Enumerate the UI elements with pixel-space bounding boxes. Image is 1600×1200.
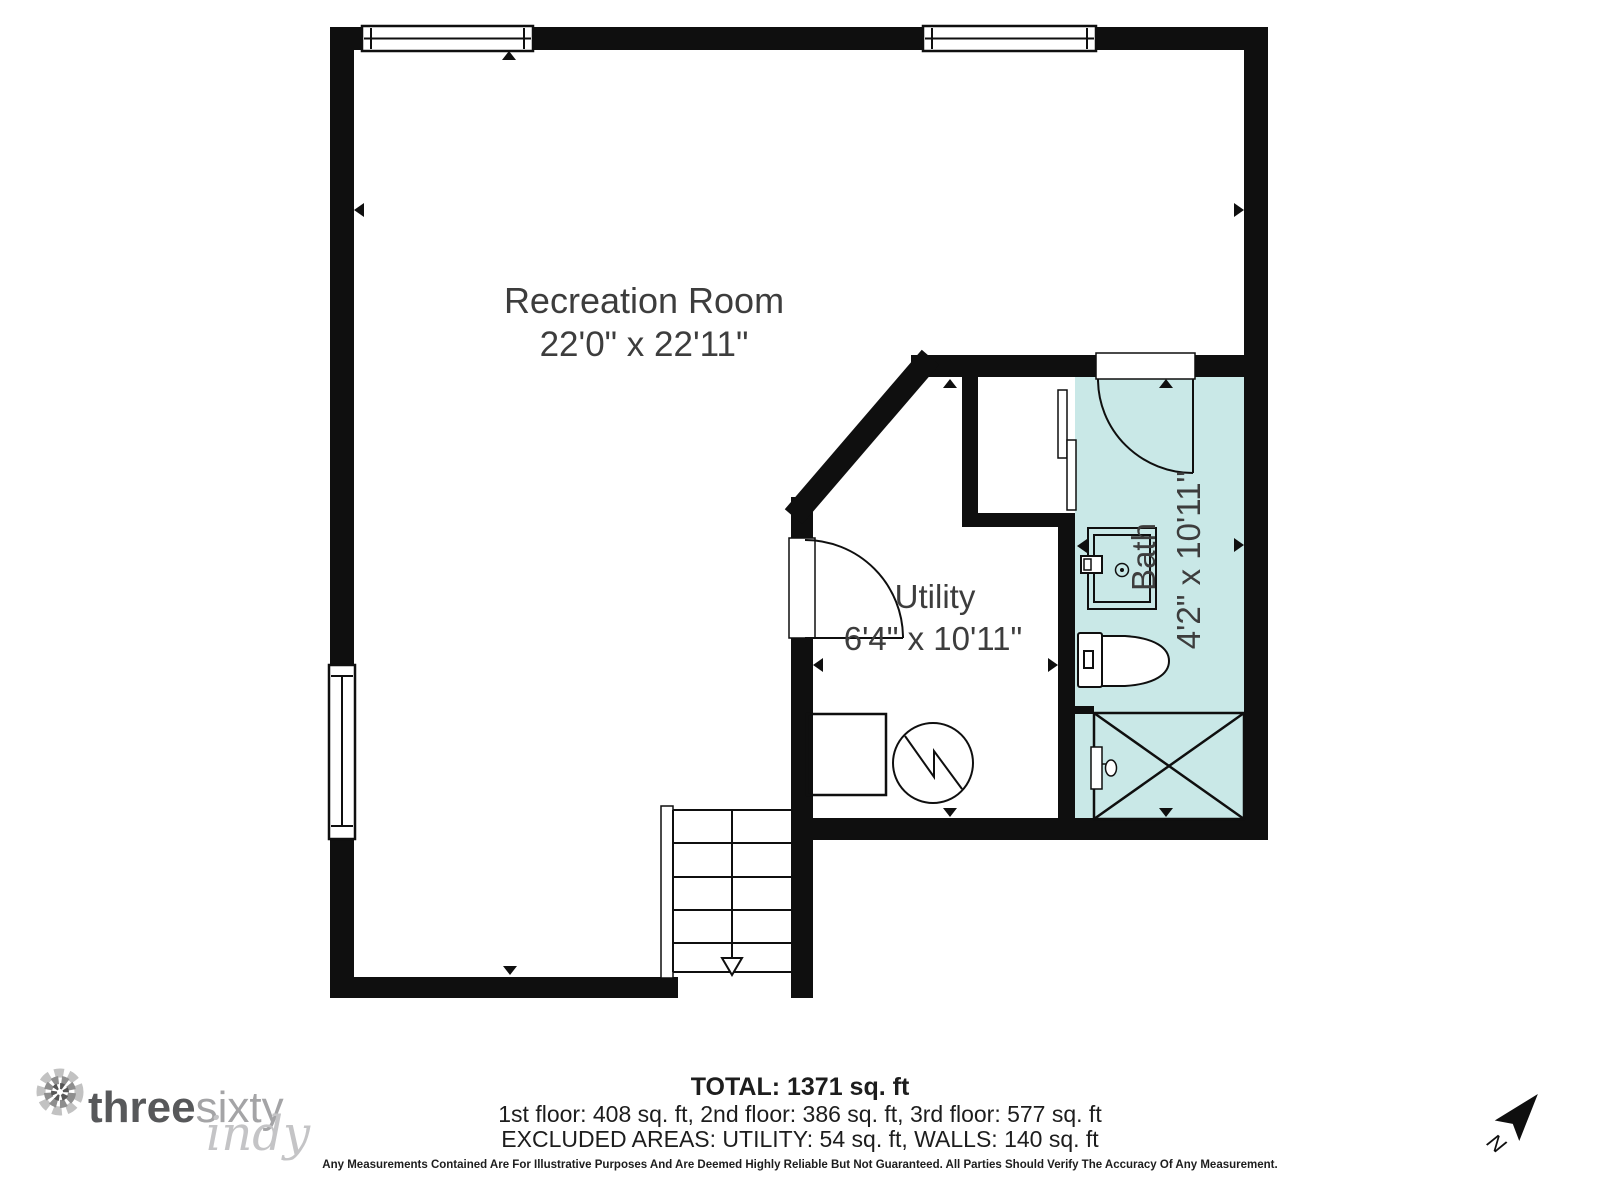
north-arrow: N [1476, 1084, 1550, 1164]
window-top-left [362, 26, 533, 51]
windows [329, 26, 1096, 839]
floor-plan-page: Recreation Room 22'0" x 22'11" Utility 6… [0, 0, 1600, 1200]
bath-dims: 4'2" x 10'11" [1170, 471, 1207, 650]
wall-shower-stub [1075, 706, 1094, 714]
excluded-areas-text: EXCLUDED AREAS: UTILITY: 54 sq. ft, WALL… [501, 1126, 1099, 1152]
utility-dims: 6'4" x 10'11" [844, 620, 1023, 657]
logo-word-three: three [88, 1083, 196, 1132]
wall-bottom-utility-bath [791, 818, 1268, 840]
wall-utility-bath-north [911, 355, 1098, 377]
wall-closet-west [962, 377, 978, 527]
logo-script: indy [206, 1106, 311, 1162]
utility-door-opening [789, 538, 815, 638]
window-top-right [923, 26, 1096, 51]
bath-door-opening [1096, 353, 1195, 379]
wall-diagonal [801, 366, 923, 508]
wall-bath-north-right [1193, 355, 1244, 377]
window-left [329, 665, 355, 839]
recreation-room-label: Recreation Room [504, 280, 784, 321]
stairs [661, 806, 791, 978]
wall-left [330, 27, 354, 998]
disclaimer-text: Any Measurements Contained Are For Illus… [322, 1159, 1277, 1171]
wall-right [1244, 27, 1268, 840]
wall-bath-west [1058, 527, 1075, 840]
water-heater [893, 723, 973, 803]
stair-rail [661, 806, 673, 978]
recreation-room-dims: 22'0" x 22'11" [540, 325, 749, 364]
appliance-box [807, 714, 886, 795]
wall-bottom-recreation [330, 977, 678, 998]
logo: threesixty indy [41, 1073, 311, 1162]
utility-label: Utility [895, 578, 976, 615]
north-label: N [1482, 1129, 1510, 1158]
wall-closet-south [962, 513, 1075, 527]
total-area-text: TOTAL: 1371 sq. ft [691, 1073, 910, 1101]
closet-sliding-doors [1058, 390, 1076, 510]
floor-areas-text: 1st floor: 408 sq. ft, 2nd floor: 386 sq… [498, 1101, 1102, 1127]
logo-pinwheel-icon [41, 1073, 79, 1111]
bath-label: Bath [1125, 523, 1162, 591]
floor-plan: Recreation Room 22'0" x 22'11" Utility 6… [0, 0, 1600, 1200]
